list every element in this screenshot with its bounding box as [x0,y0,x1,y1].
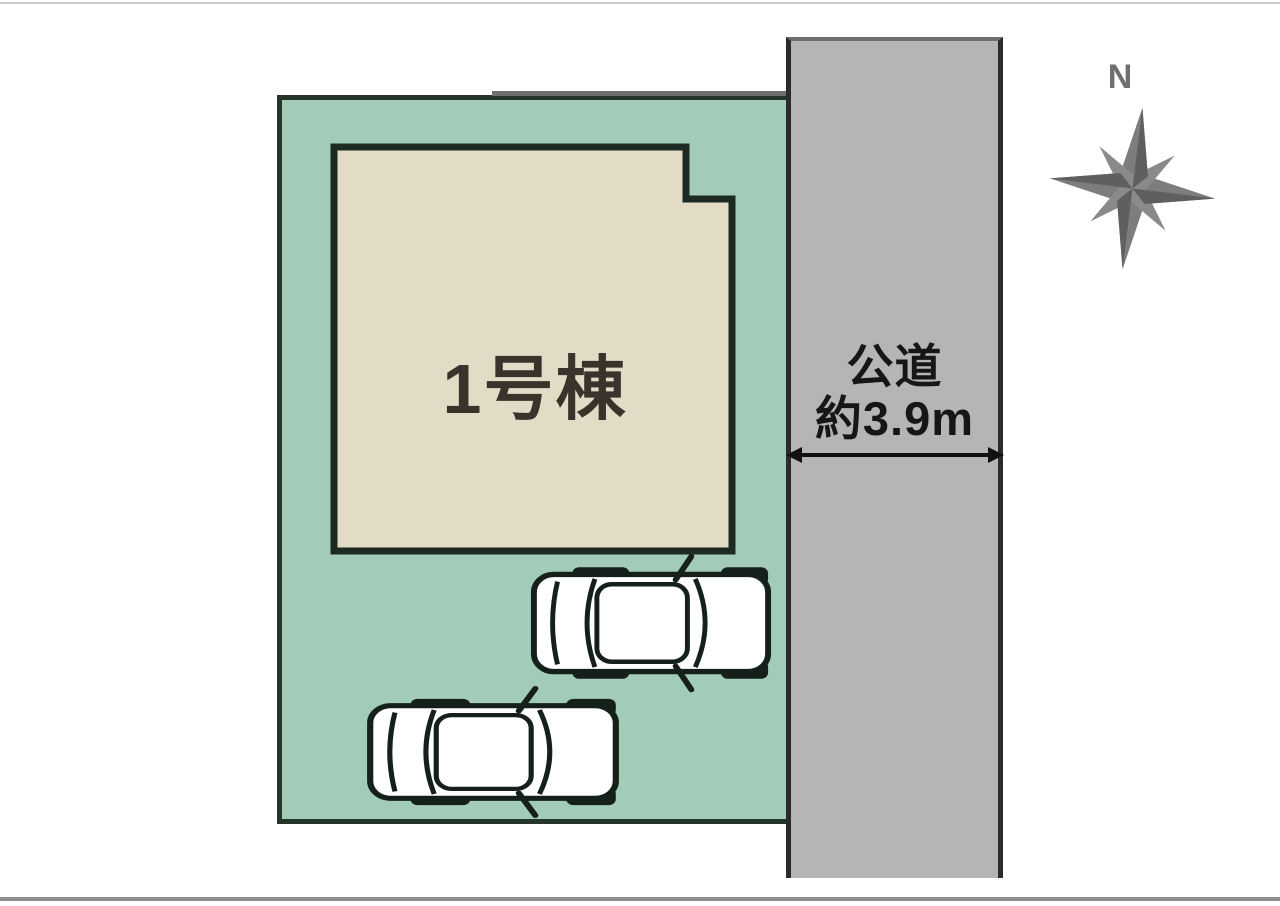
compass-north-label: N [1040,58,1200,97]
bottom-frame-line [0,897,1280,901]
site-plan: 公道 約3.9m 1号棟 [0,0,1280,906]
compass-rose: N [1040,58,1225,288]
top-frame-line [0,2,1280,4]
road-name-text: 公道 [786,341,1003,393]
car-icon [364,692,622,812]
north-boundary-line [492,91,791,96]
road-label: 公道 約3.9m [786,341,1003,445]
compass-star-icon [1040,96,1225,281]
road-width-text: 約3.9m [786,393,1003,445]
car-icon [528,560,774,686]
building-label: 1号棟 [330,333,740,434]
road-width-arrow [784,444,1006,466]
